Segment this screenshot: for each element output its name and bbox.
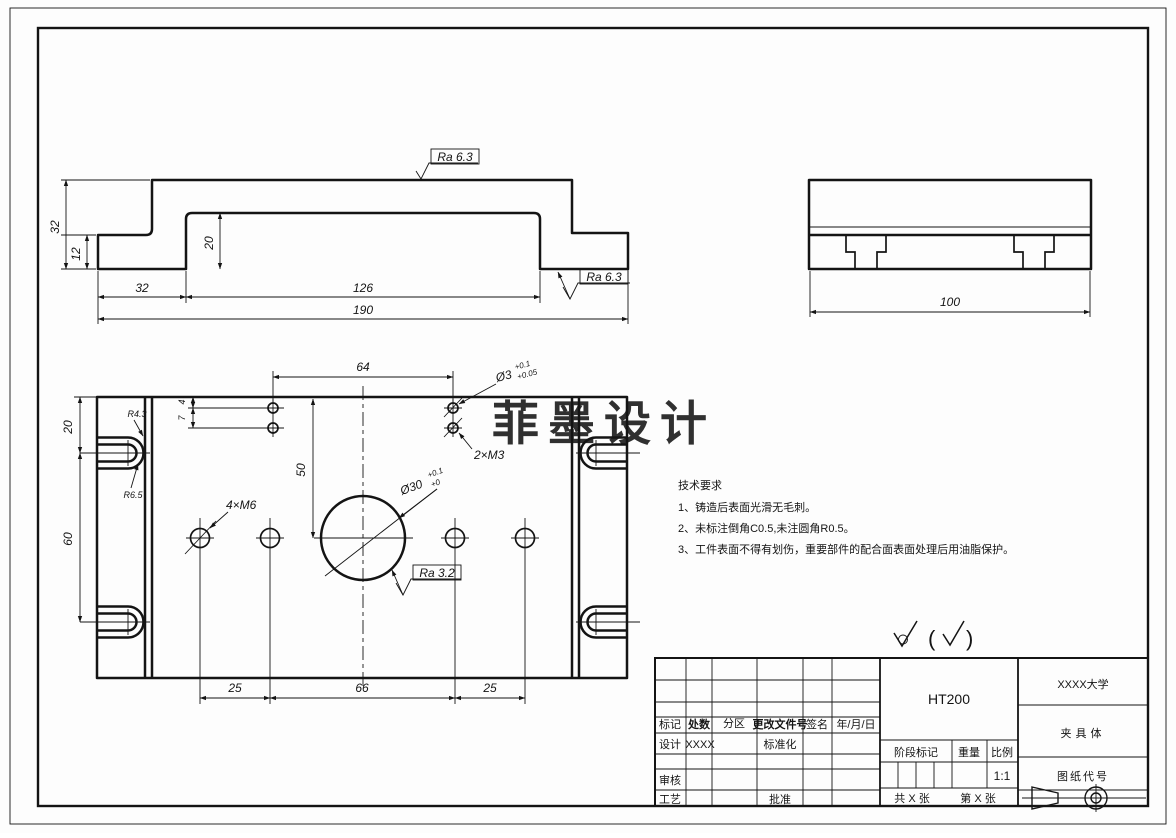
watermark: 菲墨设计: [492, 397, 716, 452]
front-view-outline: [98, 180, 628, 269]
paren-open: (: [928, 626, 936, 651]
dim-front-height: 32: [48, 220, 62, 234]
side-view: 100: [809, 180, 1091, 317]
tech-item-3: 3、工件表面不得有划伤，重要部件的配合面表面处理后用油脂保护。: [678, 542, 1014, 556]
plan-m6-holes: [185, 518, 539, 704]
tb-approve: 批准: [769, 792, 791, 806]
dim-hole-span: 64: [356, 360, 370, 374]
dim-slot-top-offset: 20: [61, 420, 75, 435]
svg-text:+0: +0: [430, 477, 442, 489]
callout-d30: Ø30 +0.1 +0: [396, 466, 447, 500]
side-view-tslots: [846, 235, 1054, 269]
tb-date: 年/月/日: [836, 717, 875, 731]
callout-d3: Ø3 +0.1 +0.05: [492, 358, 538, 387]
callout-4xm6: 4×M6: [226, 498, 257, 512]
tb-part-name: 夹具体: [1061, 726, 1106, 740]
tb-sheet-number: 第 X 张: [960, 791, 995, 805]
general-roughness-note: ( ): [894, 621, 973, 651]
paren-close: ): [966, 626, 973, 651]
surface-finish-icon-top: Ra 6.3: [416, 149, 479, 179]
radius-inner-label: R6.5: [123, 490, 143, 500]
dim-front-left-w: 32: [135, 281, 149, 295]
tb-signature: 签名: [806, 717, 828, 731]
tech-item-2: 2、未标注倒角C0.5,未注圆角R0.5。: [678, 521, 855, 535]
dim-front-flange: 12: [69, 247, 83, 261]
tb-standardization: 标准化: [764, 737, 797, 751]
dim-front-recess-h: 20: [202, 236, 216, 251]
tb-stage-mark: 阶段标记: [894, 745, 938, 759]
ra-step-label: Ra 6.3: [586, 270, 622, 284]
tb-process: 工艺: [659, 793, 681, 806]
projection-symbol-icon: [1022, 784, 1146, 812]
dim-side-depth: 100: [940, 295, 960, 309]
dim-row-offset: 50: [294, 463, 308, 477]
dim-bolt-span-mid: 66: [355, 681, 369, 695]
tb-weight: 重量: [958, 745, 980, 759]
dim-front-recess-w: 126: [353, 281, 373, 295]
tech-requirements: 技术要求 1、铸造后表面光滑无毛刺。 2、未标注倒角C0.5,未注圆角R0.5。…: [678, 479, 1014, 556]
title-block: 标记 处数 分区 更改文件号 签名 年/月/日 设计 XXXX 标准化 审核 工…: [655, 658, 1148, 812]
tb-count: 处数: [687, 717, 711, 731]
dim-edge-offset: 4: [177, 399, 187, 404]
tb-scale-label: 比例: [991, 745, 1013, 759]
tb-sheets-total: 共 X 张: [894, 792, 929, 805]
tb-change-doc: 更改文件号: [753, 717, 808, 731]
dim-bolt-span-right: 25: [482, 681, 497, 695]
dim-slot-spacing: 60: [61, 532, 75, 546]
svg-text:Ø3: Ø3: [493, 367, 513, 385]
tb-zone: 分区: [723, 717, 745, 730]
tech-item-1: 1、铸造后表面光滑无毛刺。: [678, 500, 816, 514]
tb-mark: 标记: [659, 717, 681, 731]
dim-pair-gap: 7: [177, 415, 187, 421]
svg-text:Ø30: Ø30: [397, 477, 424, 498]
tb-organization: XXXX大学: [1057, 677, 1108, 691]
ra-bore-label: Ra 3.2: [419, 566, 455, 580]
surface-finish-icon-step: Ra 6.3: [558, 269, 630, 299]
plan-small-holes: [188, 398, 462, 437]
tb-drawing-code: 图纸代号: [1057, 770, 1109, 783]
tb-design: 设计: [659, 738, 681, 751]
tb-designer: XXXX: [685, 739, 715, 751]
tb-scale-value: 1:1: [994, 769, 1011, 783]
ra-top-label: Ra 6.3: [437, 150, 473, 164]
front-view: 32 12 20 32 126 190 Ra 6.3 Ra 6.3: [48, 149, 630, 324]
drawing-canvas: 32 12 20 32 126 190 Ra 6.3 Ra 6.3 100: [0, 0, 1176, 833]
radius-outer-label: R4.3: [127, 409, 146, 419]
dim-bolt-span-left: 25: [227, 681, 242, 695]
side-view-outline: [809, 180, 1091, 269]
tech-title: 技术要求: [678, 479, 722, 492]
tb-review: 审核: [659, 773, 681, 787]
drawing-sheet: 32 12 20 32 126 190 Ra 6.3 Ra 6.3 100: [0, 0, 1176, 833]
dim-front-total-w: 190: [353, 303, 373, 317]
surface-finish-icon-bore: Ra 3.2: [392, 565, 461, 595]
tb-material: HT200: [928, 691, 970, 707]
